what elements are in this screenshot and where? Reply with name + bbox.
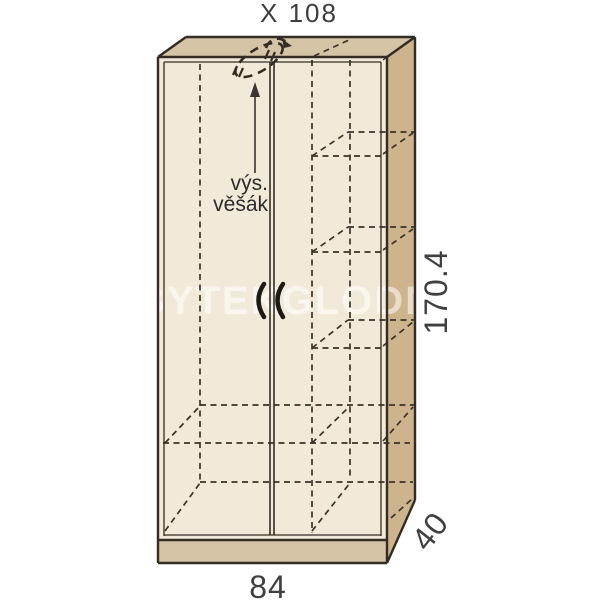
plinth-face <box>158 540 387 563</box>
dimension-height: 170.4 <box>418 249 454 334</box>
hanger-label-line2: věšák <box>213 193 268 216</box>
hanger-label-line1: výs. <box>231 172 268 195</box>
watermark-text: BYTEKGLODN <box>136 279 436 323</box>
dimension-depth: 40 <box>404 505 456 557</box>
wardrobe-technical-drawing: BYTEKGLODN <box>0 0 600 600</box>
diagram-canvas: BYTEKGLODN <box>0 0 600 600</box>
product-code-title: X 108 <box>260 0 338 28</box>
dimension-width: 84 <box>249 569 287 600</box>
